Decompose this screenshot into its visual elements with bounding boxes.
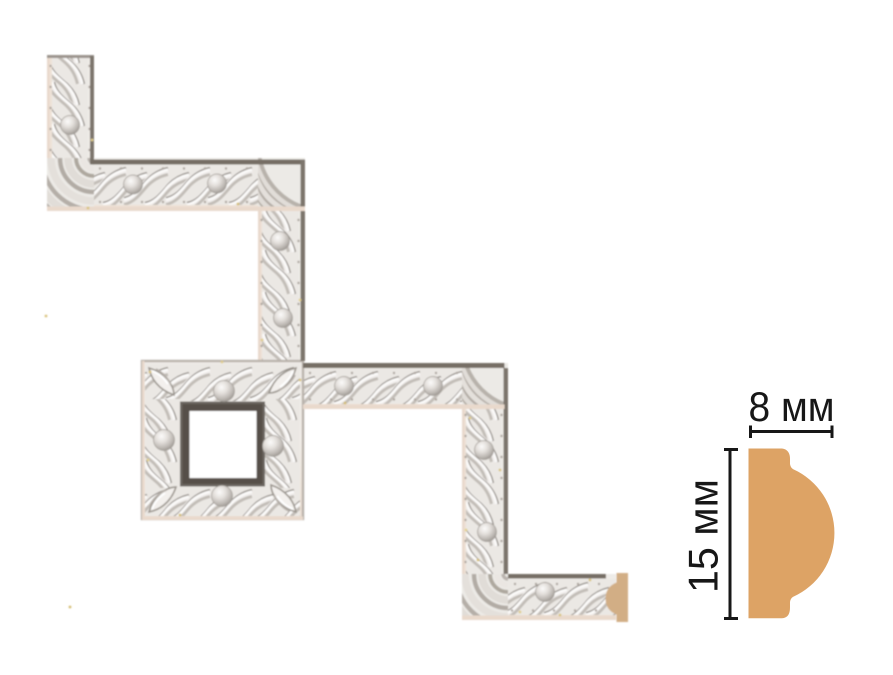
svg-text:8 мм: 8 мм (749, 383, 835, 430)
svg-text:15 мм: 15 мм (680, 479, 727, 593)
